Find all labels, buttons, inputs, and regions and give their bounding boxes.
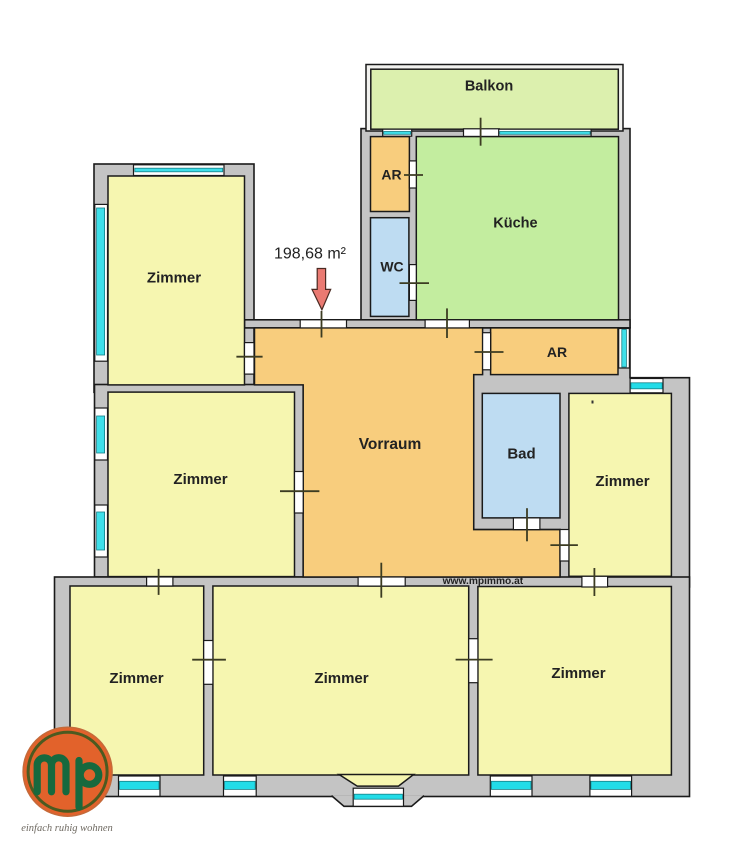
svg-text:www.mpimmo.at: www.mpimmo.at	[442, 576, 524, 587]
svg-text:Zimmer: Zimmer	[173, 471, 227, 488]
svg-text:Balkon: Balkon	[465, 79, 513, 95]
svg-text:Vorraum: Vorraum	[359, 436, 422, 453]
svg-text:AR: AR	[381, 167, 401, 183]
svg-text:einfach ruhig wohnen: einfach ruhig wohnen	[21, 823, 113, 834]
svg-text:198,68 m²: 198,68 m²	[274, 246, 347, 263]
svg-text:Zimmer: Zimmer	[314, 670, 368, 687]
svg-text:Zimmer: Zimmer	[109, 670, 163, 687]
svg-text:Zimmer: Zimmer	[147, 270, 201, 287]
svg-text:Küche: Küche	[493, 216, 537, 232]
svg-text:Zimmer: Zimmer	[595, 473, 649, 490]
svg-text:WC: WC	[380, 259, 403, 275]
svg-text:Zimmer: Zimmer	[551, 665, 605, 682]
svg-text:AR: AR	[547, 344, 567, 360]
svg-text:Bad: Bad	[507, 446, 535, 463]
